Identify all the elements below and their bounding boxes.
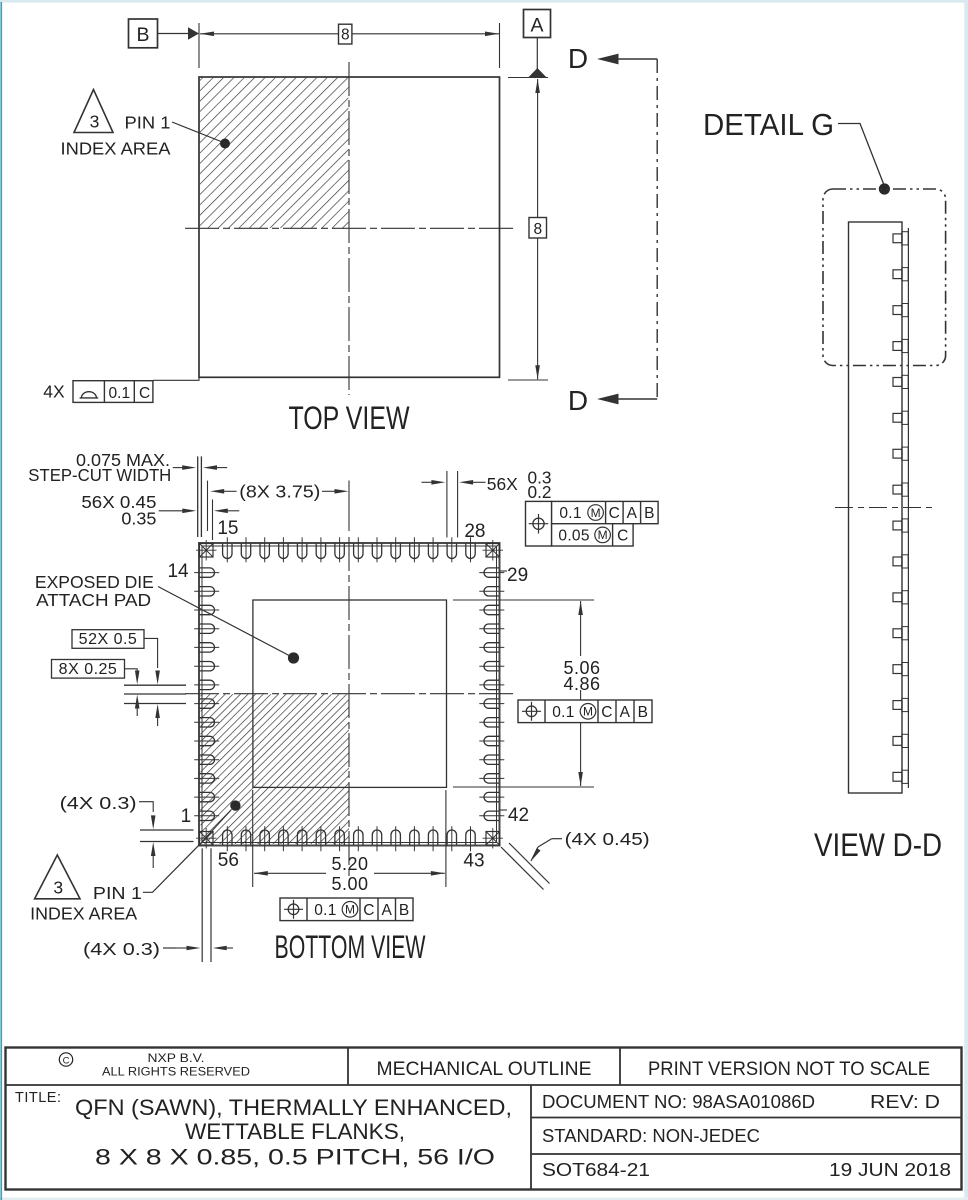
svg-text:B: B [638, 704, 649, 721]
svg-text:15: 15 [217, 518, 238, 539]
svg-text:3: 3 [53, 878, 63, 898]
svg-text:C: C [63, 1056, 70, 1067]
svg-text:D: D [568, 385, 588, 416]
svg-text:M: M [598, 528, 608, 542]
svg-text:SOT684-21: SOT684-21 [542, 1160, 650, 1180]
svg-text:M: M [591, 506, 601, 520]
svg-text:TOP VIEW: TOP VIEW [289, 400, 411, 436]
svg-text:PRINT VERSION NOT TO SCALE: PRINT VERSION NOT TO SCALE [648, 1058, 930, 1080]
svg-text:42: 42 [508, 805, 529, 826]
svg-text:BOTTOM VIEW: BOTTOM VIEW [275, 929, 427, 965]
svg-text:INDEX AREA: INDEX AREA [61, 139, 171, 159]
svg-text:5.20: 5.20 [331, 854, 368, 874]
svg-text:C: C [601, 704, 613, 721]
svg-text:52X 0.5: 52X 0.5 [79, 631, 138, 648]
svg-text:8 X 8 X 0.85, 0.5 PITCH, 56 I/: 8 X 8 X 0.85, 0.5 PITCH, 56 I/O [95, 1145, 495, 1170]
svg-text:TITLE:: TITLE: [15, 1090, 62, 1106]
svg-text:0.2: 0.2 [528, 482, 552, 502]
svg-text:A: A [627, 505, 638, 522]
svg-text:29: 29 [507, 565, 528, 586]
svg-text:14: 14 [167, 561, 189, 582]
svg-text:WETTABLE FLANKS,: WETTABLE FLANKS, [185, 1119, 405, 1144]
svg-text:8: 8 [533, 221, 542, 238]
svg-text:4.86: 4.86 [563, 674, 600, 694]
svg-text:M: M [345, 903, 355, 917]
svg-text:NXP B.V.: NXP B.V. [148, 1053, 205, 1065]
svg-text:(4X 0.3): (4X 0.3) [60, 793, 137, 813]
svg-text:(4X 0.3): (4X 0.3) [83, 939, 160, 959]
svg-text:C: C [139, 385, 150, 402]
svg-text:0.1: 0.1 [109, 385, 131, 402]
svg-text:A: A [381, 902, 392, 919]
svg-text:C: C [617, 527, 629, 544]
svg-text:D: D [568, 43, 588, 74]
svg-text:0.05: 0.05 [558, 527, 589, 544]
svg-text:QFN (SAWN), THERMALLY ENHANCED: QFN (SAWN), THERMALLY ENHANCED, [75, 1095, 512, 1120]
svg-text:REV: D: REV: D [870, 1092, 940, 1112]
svg-text:C: C [363, 902, 375, 919]
svg-text:4X: 4X [43, 382, 65, 402]
svg-text:PIN 1: PIN 1 [125, 113, 171, 133]
svg-text:M: M [583, 705, 593, 719]
svg-text:DOCUMENT NO: 98ASA01086D: DOCUMENT NO: 98ASA01086D [542, 1092, 815, 1112]
svg-text:ALL RIGHTS RESERVED: ALL RIGHTS RESERVED [102, 1067, 250, 1079]
svg-text:STANDARD: NON-JEDEC: STANDARD: NON-JEDEC [542, 1126, 760, 1146]
svg-text:0.35: 0.35 [121, 508, 156, 528]
svg-text:VIEW D-D: VIEW D-D [814, 827, 942, 863]
svg-text:MECHANICAL OUTLINE: MECHANICAL OUTLINE [377, 1058, 592, 1080]
svg-text:B: B [136, 24, 149, 46]
svg-text:5.00: 5.00 [331, 874, 368, 894]
svg-text:DETAIL G: DETAIL G [703, 107, 834, 142]
svg-text:19 JUN 2018: 19 JUN 2018 [829, 1160, 951, 1180]
svg-text:A: A [530, 14, 543, 36]
svg-text:43: 43 [463, 851, 484, 872]
svg-text:ATTACH PAD: ATTACH PAD [36, 590, 151, 610]
svg-text:(4X 0.45): (4X 0.45) [565, 829, 650, 849]
svg-text:B: B [644, 505, 655, 522]
svg-text:8X 0.25: 8X 0.25 [59, 661, 118, 678]
svg-text:C: C [609, 505, 621, 522]
svg-text:INDEX AREA: INDEX AREA [30, 904, 137, 924]
svg-text:1: 1 [181, 806, 192, 827]
svg-text:STEP-CUT WIDTH: STEP-CUT WIDTH [28, 465, 171, 485]
svg-text:B: B [399, 902, 410, 919]
svg-text:56: 56 [218, 850, 239, 871]
svg-text:EXPOSED DIE: EXPOSED DIE [35, 572, 154, 592]
svg-text:0.1: 0.1 [559, 505, 581, 522]
svg-text:3: 3 [90, 112, 100, 132]
svg-text:0.1: 0.1 [314, 902, 336, 919]
svg-text:PIN 1: PIN 1 [93, 883, 142, 903]
svg-text:56X: 56X [487, 474, 518, 494]
svg-text:0.1: 0.1 [552, 704, 574, 721]
svg-text:28: 28 [464, 521, 485, 542]
svg-text:(8X 3.75): (8X 3.75) [239, 482, 320, 502]
svg-text:A: A [620, 704, 631, 721]
svg-text:8: 8 [341, 27, 350, 44]
